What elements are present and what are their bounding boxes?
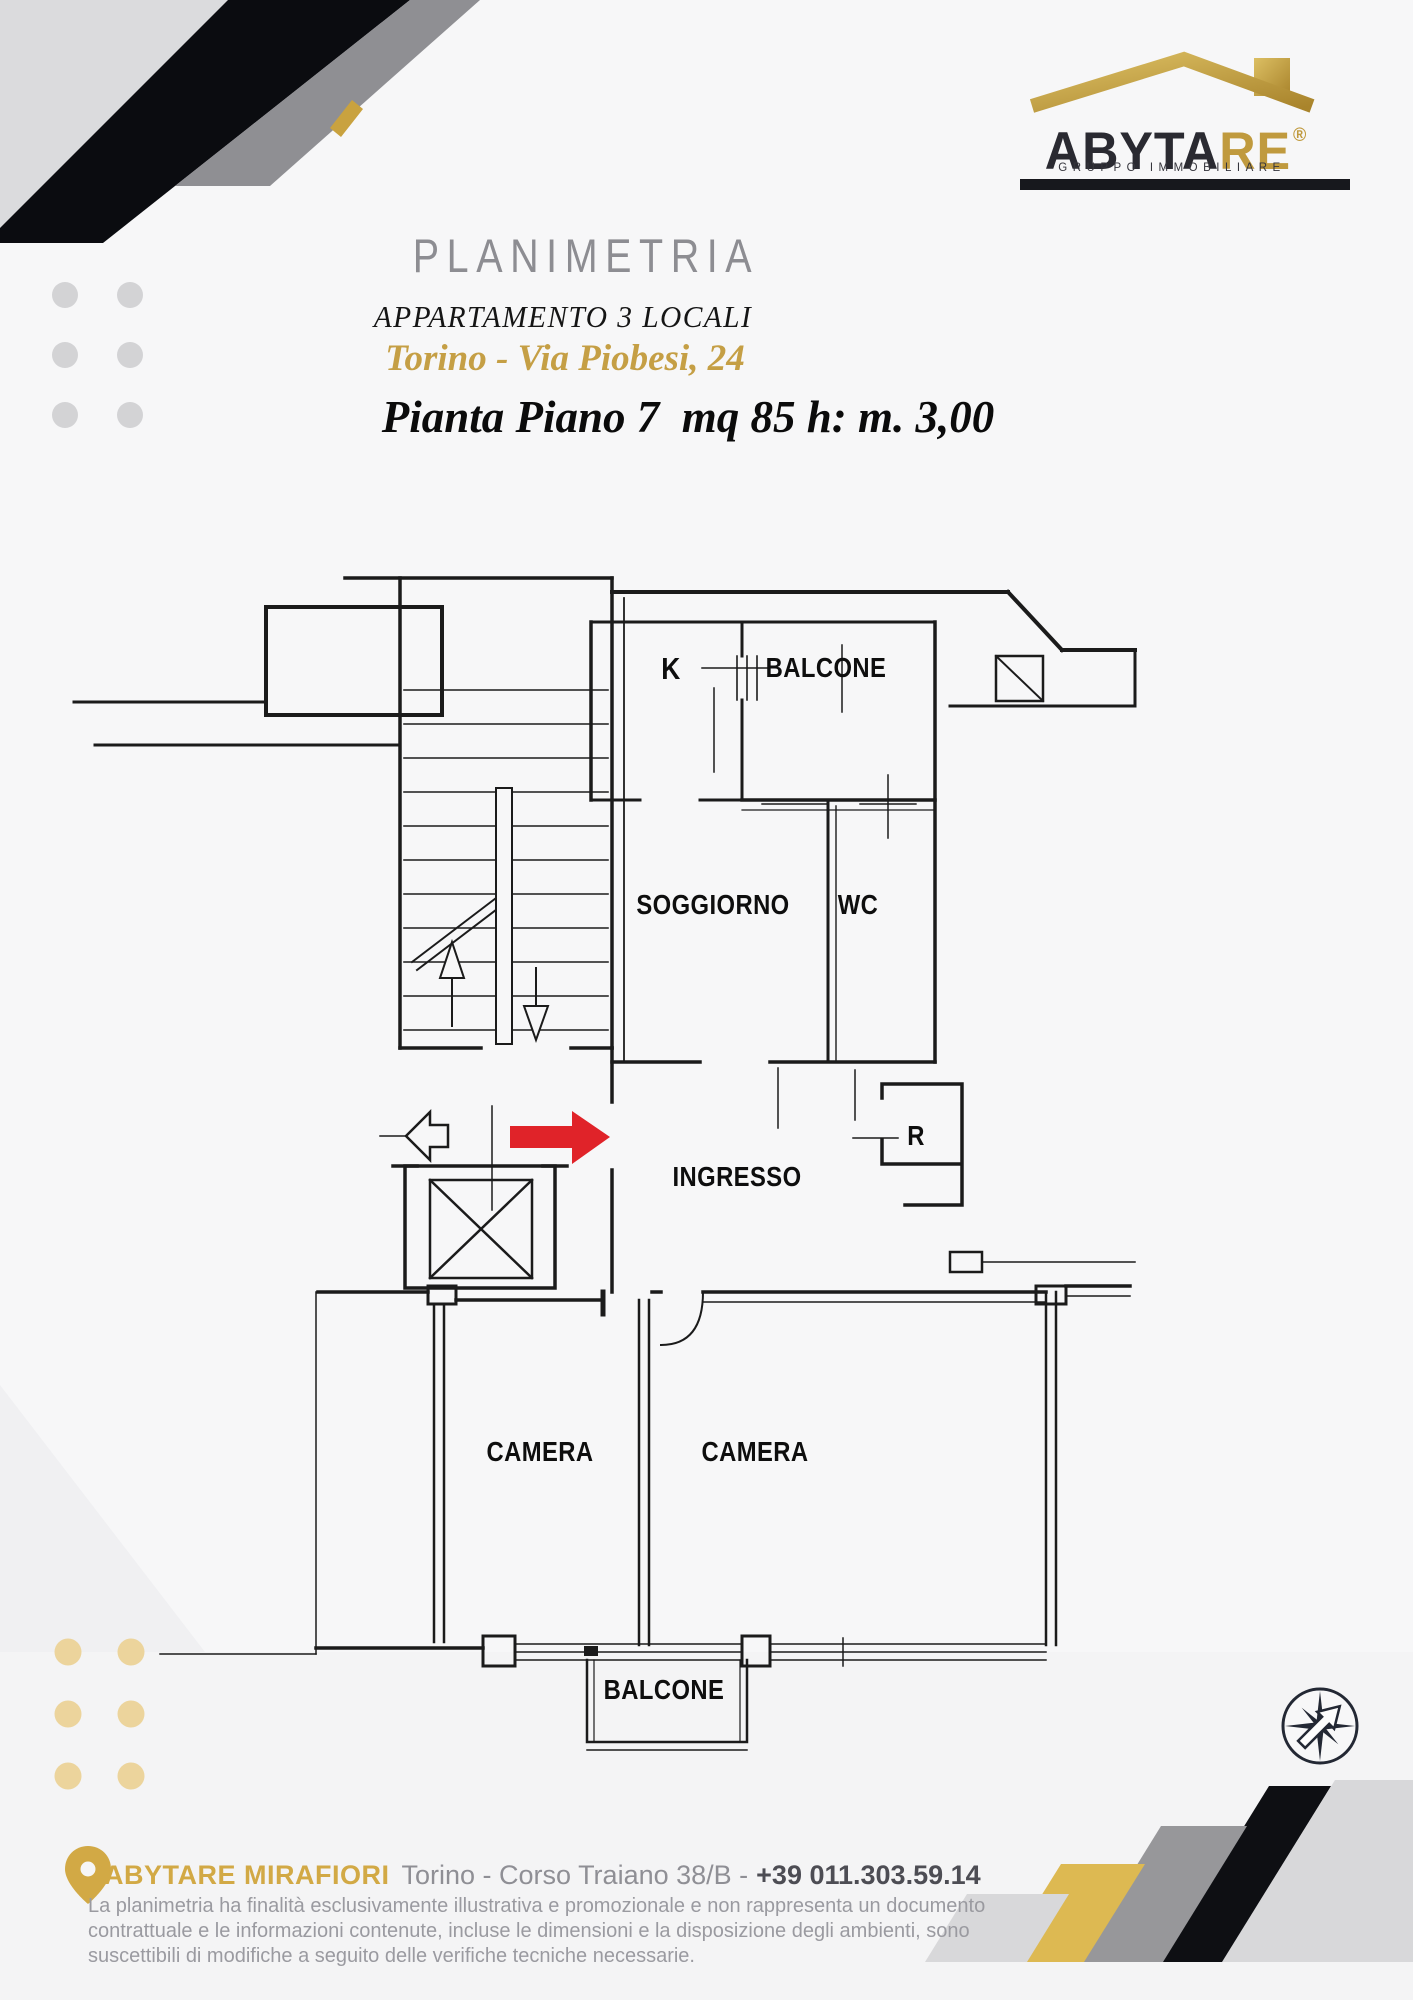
room-label-entrance: INGRESSO (672, 1161, 801, 1193)
room-label-balcony-top: BALCONE (766, 652, 887, 684)
corner-decoration-top-left (0, 0, 480, 243)
flyer-page: ABYTARE® GRUPPO IMMOBILIARE PLANIMETRIA … (0, 0, 1413, 2000)
apartment-subtitle: APPARTAMENTO 3 LOCALI (374, 299, 752, 335)
room-label-balcony-bottom: BALCONE (604, 1674, 725, 1706)
agency-phone: +39 011.303.59.14 (756, 1860, 980, 1890)
disclaimer-line: contrattuale e le informazioni contenute… (88, 1919, 985, 1944)
brand-tagline: GRUPPO IMMOBILIARE (1058, 162, 1285, 174)
room-label-bedroom-right: CAMERA (701, 1436, 808, 1468)
registered-mark: ® (1293, 125, 1307, 146)
disclaimer-line: suscettibili di modifiche a seguito dell… (88, 1944, 985, 1969)
room-label-kitchen: K (661, 651, 680, 687)
logo-underline-bar (1020, 179, 1350, 190)
footer-contact-line: ABYTARE MIRAFIORITorino - Corso Traiano … (104, 1858, 981, 1892)
entrance-arrow-icon (510, 1111, 610, 1164)
agency-address: Torino - Corso Traiano 38/B - (402, 1860, 749, 1890)
disclaimer-line: La planimetria ha finalità esclusivament… (88, 1894, 985, 1919)
landing-direction-arrow (406, 1112, 448, 1160)
floor-plan-drawing (74, 578, 1135, 1750)
logo-roof-icon (1032, 58, 1312, 106)
dot-grid-gray (52, 282, 143, 428)
plan-details: Pianta Piano 7 mq 85 h: m. 3,00 (382, 391, 995, 443)
footer-disclaimer: La planimetria ha finalità esclusivament… (88, 1894, 985, 1969)
room-label-wc: WC (838, 889, 879, 921)
agency-name: ABYTARE MIRAFIORI (104, 1860, 390, 1890)
page-title: PLANIMETRIA (413, 232, 759, 280)
property-address: Torino - Via Piobesi, 24 (385, 337, 744, 381)
room-label-storage: R (907, 1120, 925, 1152)
compass-icon (1283, 1689, 1357, 1763)
room-label-living-room: SOGGIORNO (636, 889, 789, 921)
room-label-bedroom-left: CAMERA (486, 1436, 593, 1468)
